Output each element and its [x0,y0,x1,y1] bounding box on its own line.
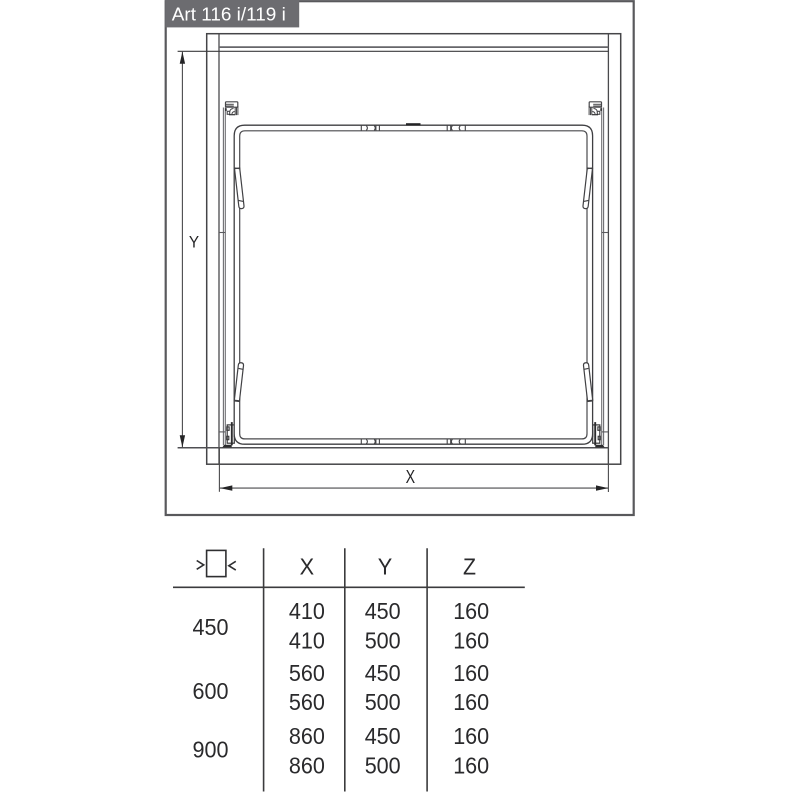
svg-text:500: 500 [365,689,401,715]
svg-text:860: 860 [289,723,325,749]
svg-text:450: 450 [193,614,229,640]
svg-text:600: 600 [193,678,229,704]
svg-text:450: 450 [365,723,401,749]
svg-text:860: 860 [289,753,325,779]
svg-text:560: 560 [289,660,325,686]
svg-text:500: 500 [365,753,401,779]
svg-text:Y: Y [378,554,393,580]
svg-text:160: 160 [453,660,489,686]
svg-text:450: 450 [365,660,401,686]
svg-text:160: 160 [453,627,489,653]
svg-text:160: 160 [453,689,489,715]
svg-text:560: 560 [289,689,325,715]
svg-text:900: 900 [193,736,229,762]
svg-text:Z: Z [463,554,476,580]
svg-text:Art 116 i/119 i: Art 116 i/119 i [172,3,286,24]
svg-text:160: 160 [453,753,489,779]
svg-text:Y: Y [189,232,199,251]
svg-text:X: X [300,554,315,580]
svg-text:X: X [406,467,416,487]
svg-text:410: 410 [289,598,325,624]
svg-text:410: 410 [289,627,325,653]
svg-text:160: 160 [453,598,489,624]
svg-text:500: 500 [365,627,401,653]
svg-text:160: 160 [453,723,489,749]
svg-text:450: 450 [365,598,401,624]
